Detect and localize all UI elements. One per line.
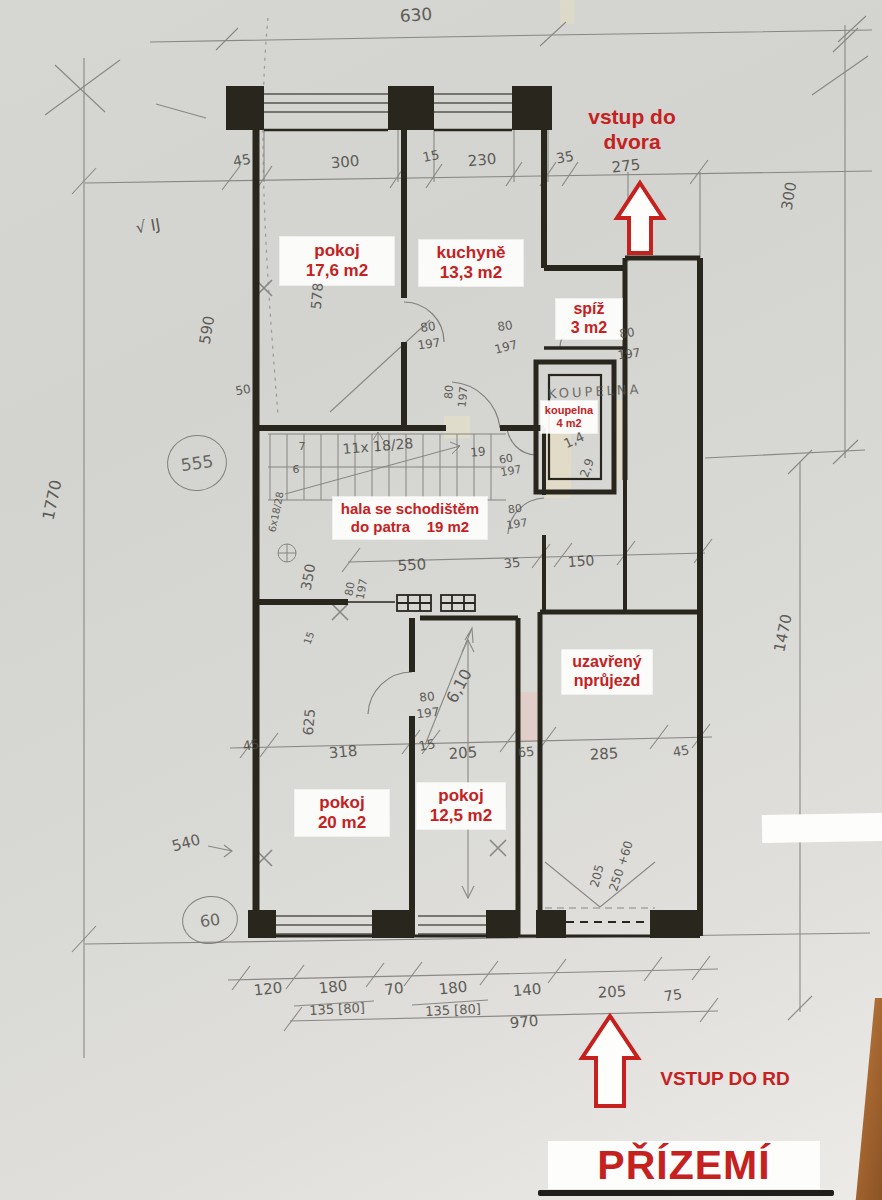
room-label-pokoj-20: pokoj20 m2	[295, 790, 389, 836]
arrow-up-courtyard	[617, 183, 663, 253]
note-vstup-do-rd: VSTUP DO RD	[655, 1068, 795, 1091]
room-label-line: do patra 19 m2	[333, 518, 487, 536]
room-label-line: pokoj	[417, 786, 505, 806]
room-label-line: pokoj	[280, 241, 394, 261]
room-label-spiz: spíž3 m2	[556, 299, 622, 339]
note-line: vstup do	[572, 104, 692, 129]
whiteout-band	[762, 813, 882, 843]
guide-curve	[263, 18, 278, 415]
note-vstup-do-dvora: vstup do dvora	[572, 104, 692, 154]
room-label-line: 20 m2	[295, 813, 389, 833]
room-label-kuchyne: kuchyně13,3 m2	[419, 240, 523, 286]
room-label-line: koupelna	[541, 404, 597, 417]
note-line: dvora	[572, 129, 692, 154]
room-label-pokoj-125: pokoj12,5 m2	[417, 783, 505, 829]
room-label-line: pokoj	[295, 793, 389, 813]
arrow-up-house-entry	[582, 1016, 638, 1106]
floor-plan: vstup do dvora KOUPELNA VSTUP DO RD PŘÍZ…	[0, 0, 882, 1200]
plan-drawing	[0, 0, 882, 1200]
room-label-line: 4 m2	[541, 417, 597, 430]
room-label-line: kuchyně	[419, 243, 523, 263]
room-label-line: 3 m2	[556, 319, 622, 338]
room-label-hala: hala se schodištěmdo patra 19 m2	[333, 497, 487, 539]
floor-title: PŘÍZEMÍ	[548, 1141, 820, 1189]
room-label-line: hala se schodištěm	[333, 500, 487, 518]
room-label-line: 12,5 m2	[417, 806, 505, 826]
room-label-line: nprůjezd	[562, 672, 652, 691]
room-label-koupelna: koupelna4 m2	[541, 401, 597, 433]
room-label-pokoj-176: pokoj17,6 m2	[280, 237, 394, 285]
room-label-line: 17,6 m2	[280, 261, 394, 281]
room-label-line: 13,3 m2	[419, 263, 523, 283]
room-label-line: spíž	[556, 300, 622, 319]
title-underline	[538, 1190, 834, 1196]
room-label-prujezd: uzavřenýnprůjezd	[562, 650, 652, 694]
room-label-line: uzavřený	[562, 653, 652, 672]
